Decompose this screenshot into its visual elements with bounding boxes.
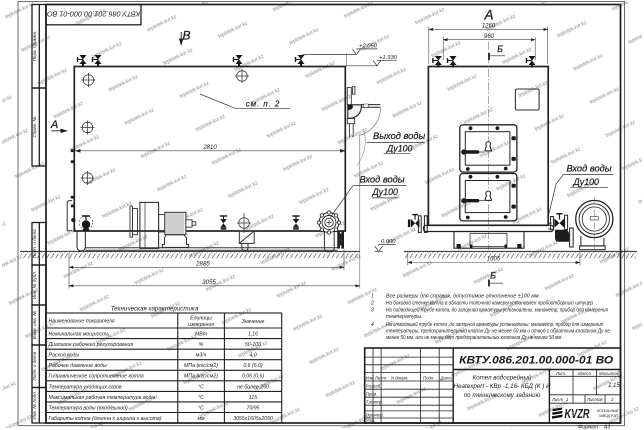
svg-text:Инв. № дубл.: Инв. № дубл. (32, 271, 37, 299)
svg-text:Номинальная мощность: Номинальная мощность (49, 332, 110, 338)
svg-text:А3: А3 (603, 424, 610, 430)
svg-text:температуры, предохранительный: температуры, предохранительный клапан Ду… (386, 328, 610, 335)
svg-text:Габариты котла (длинна х ширин: Габариты котла (длинна х ширина х высота… (49, 416, 162, 422)
svg-text:Все размеры для справок, допус: Все размеры для справок, допустимое откл… (386, 294, 540, 300)
svg-text:МПа (кгс/см2): МПа (кгс/см2) (184, 363, 218, 369)
svg-text:960: 960 (484, 34, 495, 40)
svg-text:Лист: Лист (551, 397, 563, 402)
svg-text:3: 3 (371, 308, 374, 314)
svg-text:Расход воды: Расход воды (49, 353, 80, 359)
svg-text:N докум.: N докум. (391, 376, 408, 381)
svg-text:МВт: МВт (195, 332, 208, 338)
svg-text:Масштаб: Масштаб (599, 371, 620, 376)
svg-text:Диапазон рабочего регулировани: Диапазон рабочего регулирования (48, 342, 134, 348)
svg-text:2885: 2885 (195, 261, 210, 268)
svg-text:70/95: 70/95 (247, 405, 260, 411)
svg-text:Дата: Дата (440, 376, 453, 381)
svg-text:4: 4 (371, 322, 374, 328)
svg-text:Максимальная рабочая температу: Максимальная рабочая температура воды (49, 395, 156, 401)
svg-text:Б: Б (490, 270, 496, 280)
svg-text:Утв.: Утв. (366, 418, 376, 423)
svg-text:А: А (50, 119, 58, 131)
svg-text:Рабочее давление воды: Рабочее давление воды (49, 363, 107, 369)
svg-text:На подводящей трубе котла, д: На подводящей трубе котла, до запорной а… (386, 307, 608, 314)
svg-text:+1.930: +1.930 (379, 55, 398, 61)
svg-text:Наименование показателя: Наименование показателя (49, 319, 115, 325)
svg-text:3055х1605х2050: 3055х1605х2050 (233, 416, 273, 422)
svg-text:На боковой стенке котла в обла: На боковой стенке котла в области топочн… (386, 300, 593, 307)
svg-text:0.000: 0.000 (381, 239, 396, 245)
svg-text:не более 250: не более 250 (237, 384, 269, 390)
svg-text:Ду100: Ду100 (573, 177, 599, 187)
svg-text:Изм Лист: Изм Лист (366, 376, 387, 381)
svg-text:Температура воды (вход/выход): Температура воды (вход/выход) (49, 405, 128, 411)
svg-text:°С: °С (198, 384, 204, 390)
svg-text:Пров.: Пров. (366, 392, 377, 397)
svg-text:ЗАВОД РЭП: ЗАВОД РЭП (599, 414, 619, 418)
svg-text:КОТЕЛЬНЫЙ: КОТЕЛЬНЫЙ (597, 409, 619, 413)
svg-text:1:15: 1:15 (608, 383, 620, 389)
svg-text:Масса: Масса (578, 371, 591, 376)
svg-text:Единицы: Единицы (190, 316, 212, 322)
svg-text:КВТУ.086.201.00.000-01 ВО: КВТУ.086.201.00.000-01 ВО (459, 355, 613, 367)
svg-text:1,16: 1,16 (248, 332, 258, 338)
svg-text:температуры.: температуры. (386, 314, 423, 320)
svg-text:Подп. и дата: Подп. и дата (32, 351, 37, 380)
svg-text:м3/ч: м3/ч (196, 353, 207, 359)
svg-text:1605: 1605 (487, 256, 501, 263)
svg-text:Техническая характеристика: Техническая характеристика (111, 306, 199, 313)
svg-text:Т.контр.: Т.контр. (366, 399, 383, 404)
svg-text:°С: °С (198, 405, 204, 411)
svg-text:Вход воды: Вход воды (567, 164, 612, 174)
svg-text:°С: °С (198, 395, 204, 401)
svg-text:1: 1 (371, 294, 374, 300)
svg-text:Температура уходящих газов: Температура уходящих газов (49, 384, 122, 390)
svg-text:На отводящей трубе котла ,до з: На отводящей трубе котла ,до запорной ар… (386, 321, 603, 328)
svg-text:Перв. примен.: Перв. примен. (32, 31, 37, 62)
svg-text:Котел водогрейный: Котел водогрейный (473, 375, 532, 382)
svg-text:Ду100: Ду100 (372, 187, 398, 197)
svg-text:КВТУ.086.201.00.000-01 ВО: КВТУ.086.201.00.000-01 ВО (47, 10, 140, 19)
svg-text:%: % (199, 342, 204, 348)
svg-text:см. п. 2: см. п. 2 (246, 99, 280, 108)
svg-text:по техническому заданию: по техническому заданию (464, 392, 541, 399)
svg-text:1260: 1260 (482, 24, 496, 30)
svg-text:Heatexpert - КВр -1,16- КБД (К: Heatexpert - КВр -1,16- КБД (К ) И (454, 383, 552, 390)
svg-text:+2.050: +2.050 (359, 44, 378, 50)
svg-text:Формат: Формат (578, 424, 598, 430)
svg-text:115: 115 (249, 395, 257, 401)
svg-text:2: 2 (370, 301, 374, 307)
svg-text:Листов: Листов (586, 397, 603, 402)
svg-text:Б: Б (497, 44, 503, 54)
svg-text:А: А (483, 8, 493, 23)
svg-text:МПа (кгс/см2): МПа (кгс/см2) (184, 374, 218, 380)
svg-text:Подп.: Подп. (423, 376, 434, 381)
svg-text:Взам. инв. №: Взам. инв. № (32, 311, 37, 339)
svg-text:мм: мм (197, 416, 205, 422)
svg-text:В: В (182, 29, 190, 43)
svg-text:менее 50 мм, или не менее дву: менее 50 мм, или не менее двух предохран… (386, 335, 564, 341)
svg-text:Инв. № подл.: Инв. № подл. (32, 391, 37, 420)
svg-text:Гидравлическое сопротивление к: Гидравлическое сопротивление котла (49, 374, 144, 380)
svg-text:Н.контр.: Н.контр. (366, 413, 384, 418)
svg-text:Вход воды: Вход воды (360, 174, 405, 184)
svg-text:KVZR: KVZR (565, 406, 590, 421)
svg-text:Разраб.: Разраб. (366, 384, 382, 389)
svg-text:3055: 3055 (202, 279, 216, 286)
svg-text:Значение: Значение (242, 319, 265, 325)
svg-text:4,0: 4,0 (249, 353, 256, 359)
svg-text:2810: 2810 (202, 145, 217, 151)
svg-text:0,06 (0,6): 0,06 (0,6) (242, 374, 264, 380)
svg-text:0,6 (6,0): 0,6 (6,0) (243, 363, 263, 369)
svg-text:Выход воды: Выход воды (373, 131, 425, 141)
svg-text:Ду100: Ду100 (386, 144, 412, 154)
svg-text:50-100: 50-100 (245, 342, 261, 348)
svg-text:измерения: измерения (188, 322, 214, 328)
svg-text:Лит.: Лит. (555, 371, 566, 376)
svg-text:Справ. №: Справ. № (32, 117, 37, 138)
